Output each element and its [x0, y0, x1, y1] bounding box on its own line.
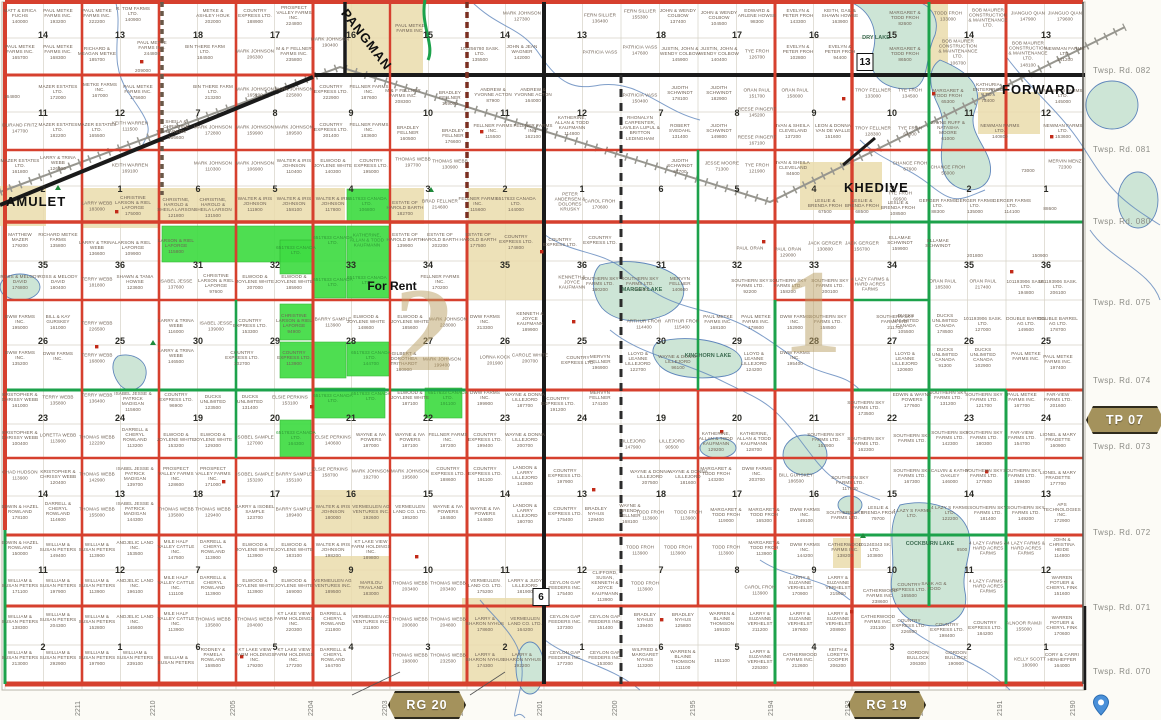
- township-road-label: Twsp. Rd. 080: [1093, 217, 1151, 226]
- parcel-label: CHRISTINE LARSON & RIEL LAFORGE94900: [274, 313, 314, 335]
- parcel-label: 6517633 CANADA LTD.144000: [496, 196, 536, 212]
- section-number: 26: [964, 336, 974, 346]
- parcel-label: EDWIN & HAZEL ROWLAND150000: [0, 540, 40, 556]
- parcel-label: ISOBEL SAMPLE127000: [235, 434, 275, 445]
- parcel-label: EVELYN & PETER FROH102800: [778, 44, 818, 60]
- section-number: 1: [579, 184, 584, 194]
- parcel-label: CORY & CARRI HENHEFFER164000: [1042, 652, 1082, 668]
- section-number: 17: [270, 30, 280, 40]
- parcel-label: DUCKS UNLIMITED123500: [193, 394, 233, 410]
- parcel-label: DWW FARMS INC.144200: [785, 542, 825, 558]
- lake-label: KINGHORN LAKE: [682, 353, 734, 359]
- parcel-label: THOMAS WEBB204000: [235, 616, 275, 627]
- parcel-label: TYE FROH134500: [890, 87, 930, 98]
- parcel-label: MATTHEW MAZER179200: [0, 232, 40, 248]
- parcel-label: 6517633 CANADA LTD.: [313, 393, 353, 403]
- parcel-label: TYE FROH64300: [890, 125, 930, 136]
- town-label-amulet: AMULET: [6, 194, 66, 209]
- parcel-label: ELWOOD & JOYLENE WHITE129300: [193, 432, 233, 448]
- parcel-label: BRADLEY FELLNER176600: [433, 128, 473, 144]
- parcel-label: BRAD FELLNER214600: [420, 198, 460, 209]
- parcel-label: REESE PINGERT145200: [737, 106, 777, 117]
- parcel-label: COUNTRY EXPRESS LTD.197900: [545, 468, 585, 484]
- parcel-label: CHRISTINE, HAROLD & SHEILA LARSON121800: [156, 197, 196, 219]
- section-number: 23: [38, 413, 48, 423]
- section-number: 9: [811, 565, 816, 575]
- section-number: 8: [734, 565, 739, 575]
- parcel-label: FELLNER FARMS INC.183600: [349, 122, 389, 138]
- parcel-label: ORAN PAUL185300: [923, 278, 963, 289]
- parcel-label: MARK JOHNSON206300: [235, 48, 275, 59]
- parcel-label: TODD FROH113900: [620, 544, 660, 555]
- parcel-label: LARRY & SHARON NYHUS178600: [465, 616, 505, 632]
- grid-coordinate-label: 2210: [150, 700, 157, 716]
- parcel-label: DWW FARMS INC.135200: [0, 350, 40, 366]
- parcel-label: LARRY & SUZANNE VERHELST211200: [740, 611, 780, 633]
- parcel-label: BIN THERE FARM LTD.213200: [193, 84, 233, 100]
- parcel-label: FERN SILLIER155300: [620, 8, 660, 19]
- parcel-label: IVAN & SHEILA CLEVELAND137200: [773, 123, 813, 139]
- parcel-label: KT LAKE VIEW FARM HOLDINGS INC.179200: [235, 647, 275, 669]
- section-number: 14: [38, 489, 48, 499]
- parcel-label: ISABEL JESSE137600: [156, 278, 196, 289]
- section-number: 34: [887, 260, 897, 270]
- parcel-label: BARRY & ISOBEL SAMPLE123700: [235, 504, 275, 520]
- section-number: 5: [734, 184, 739, 194]
- parcel-label: DARRELL & CHERYL ROWLAND211800: [313, 611, 353, 633]
- parcel-label: JUDITH SCHWINDT149800: [699, 123, 739, 139]
- parcel-label: WILLIAM & SUSAN PETERS113900: [77, 542, 117, 558]
- parcel-label: PAUL METKE FARMS INC.167700: [1002, 392, 1042, 408]
- parcel-label: LARRY & TRINA WEBB126000: [38, 155, 78, 171]
- map-labels-layer: 21MATT & ERICA FUCHS140000PAUL METKE FAR…: [0, 0, 1161, 720]
- section-number: 12: [1041, 565, 1051, 575]
- section-number: 35: [500, 260, 510, 270]
- parcel-label: TODD FROH133000: [928, 10, 968, 21]
- parcel-label: KATHERINE, ALLAN & TODD KAUFMANN: [347, 232, 387, 247]
- parcel-label: TODD FROH113900: [625, 580, 665, 591]
- parcel-label: SASK AG & FOOD: [914, 581, 954, 591]
- parcel-label: 4 LAZY FARMS & HARD ACRES FARMS: [1006, 540, 1046, 555]
- parcel-label: JOHN & WENDY COLBOW104500: [699, 10, 739, 26]
- parcel-label: PROSPECT VALLEY FARMS INC.128600: [156, 466, 196, 488]
- section-number: 14: [964, 30, 974, 40]
- parcel-label: COUNTRY EXPRESS LTD.199400: [465, 432, 505, 448]
- parcel-label: RICHARD METKE FARMS135800: [38, 232, 78, 248]
- parcel-label: WILLIAM & SUSAN PETERS113900: [77, 578, 117, 594]
- section-number: 18: [193, 489, 203, 499]
- parcel-label: DWW FARMS INC.195000: [0, 314, 40, 330]
- parcel-label: PAUL METKE FARMS INC.168100: [698, 314, 738, 330]
- lake-label: COCKBURN LAKE: [904, 541, 956, 547]
- parcel-label: TERRY WEBB136400: [77, 392, 117, 403]
- section-number: 24: [115, 413, 125, 423]
- parcel-label: METKE FARMS INC.167000: [80, 82, 120, 98]
- parcel-label: LARRY & SUZANNE VERHELST170900: [780, 575, 820, 597]
- section-number: 19: [193, 413, 203, 423]
- parcel-label: SOUTHERN SKY FARMS LTD.: [892, 433, 932, 443]
- section-number: 11: [38, 565, 48, 575]
- parcel-label: MILE HALF VALLEY CATTLE INC.111100: [156, 575, 196, 597]
- parcel-label: METKE & ASHLEY HOUK202000: [193, 8, 233, 24]
- parcel-label: MERVYN FELLNER174100: [580, 390, 620, 406]
- section-number: 11: [500, 108, 510, 118]
- grid-coordinate-label: 2191: [997, 700, 1004, 716]
- parcel-label: LEON & DONNA VAN DE WALLE151600: [813, 123, 853, 139]
- parcel-label: KATHERINE, ALLAN & TODD KAUFMANN114800: [552, 115, 592, 137]
- township-road-label: Twsp. Rd. 071: [1093, 603, 1151, 612]
- parcel-label: THOMAS WEBB155000: [77, 506, 117, 517]
- parcel-label: COUNTRY EXPRESS LTD.153300: [230, 318, 270, 334]
- parcel-label: COUNTRY EXPRESS LTD.184200: [965, 620, 1005, 636]
- parcel-label: WALTER & IRIS JOHNSON198200: [313, 542, 353, 558]
- parcel-label: CEYLON GAP FEEDERS INC.137300: [545, 614, 585, 630]
- section-number: 2: [502, 642, 507, 652]
- parcel-label: FELLNER FARMS INC.115500: [473, 123, 513, 139]
- section-number: 35: [964, 260, 974, 270]
- parcel-label: JIANGUO QIAN179600: [1045, 10, 1085, 21]
- section-number: 32: [732, 260, 742, 270]
- parcel-label: LORETTA WEBB113900: [38, 432, 78, 443]
- grid-coordinate-label: 2190: [1070, 700, 1077, 716]
- section-number: 26: [500, 336, 510, 346]
- section-number: 14: [964, 489, 974, 499]
- section-number: 12: [577, 108, 587, 118]
- parcel-label: MAZER ESTATES LTD.172000: [38, 84, 78, 100]
- section-number: 4: [348, 184, 353, 194]
- parcel-label: COUNTRY EXPRESS LTD.191100: [465, 466, 505, 482]
- parcel-label: COUNTRY EXPRESS LTD.201400: [311, 122, 351, 138]
- grid-coordinate-label: 2211: [75, 701, 82, 716]
- parcel-label: JOHN & WENDY COLBOW137400: [658, 8, 698, 24]
- parcel-label: THOMAS WEBB130900: [430, 158, 470, 169]
- parcel-label: RICHARD & MEAGAN METKE185700: [77, 46, 117, 62]
- parcel-label: LARRY & SHARON NYHUS192200: [502, 652, 542, 668]
- section-number: 2: [40, 642, 45, 652]
- parcel-label: LESLIE & BRENDA FROH67500: [805, 198, 845, 214]
- parcel-label: WAYNE & IVA POWERS144600: [465, 506, 505, 522]
- grid-coordinate-label: 2200: [612, 700, 619, 716]
- section-number: 15: [423, 30, 433, 40]
- parcel-label: KRISTOPHER & CHRISSY WEBB120400: [38, 469, 78, 485]
- parcel-label: WAYNE & IVA POWERS184500: [428, 504, 468, 520]
- parcel-label: LARRY & SUZANNE VERHELST215600: [818, 575, 858, 597]
- section-number: 2: [966, 184, 971, 194]
- parcel-label: THOMAS WEBB142900: [77, 471, 117, 482]
- grid-coordinate-label: 2205: [230, 700, 237, 716]
- parcel-label: BRADLEY NYHUS139400: [625, 612, 665, 628]
- parcel-label: WILLIAM & SUSAN PETERS292900: [38, 650, 78, 666]
- parcel-label: KT LAKE VIEW FARM HOLDINGS INC.177200: [274, 647, 314, 669]
- parcel-label: LLOYD & LEANNE LILLEJORD122700: [618, 351, 658, 373]
- parcel-label: VERMEULEN LAND CO. LTD.195200: [390, 504, 430, 520]
- section-number: 36: [115, 260, 125, 270]
- section-number: 10: [423, 108, 433, 118]
- parcel-label: WAYNE & DONNA LILLEJORD207500: [630, 469, 670, 485]
- for-rent-label: For Rent: [367, 279, 416, 293]
- section-number: 23: [964, 413, 974, 423]
- section-number: 31: [193, 260, 203, 270]
- parcel-label: MILE HALF VALLEY CATTLE INC.113900: [156, 611, 196, 633]
- parcel-label: LILLEJORD147900: [613, 438, 653, 449]
- section-number: 33: [346, 260, 356, 270]
- parcel-label: PAUL METKE FARMS INC.197400: [1038, 354, 1078, 370]
- section-number: 25: [577, 336, 587, 346]
- parcel-label: SOUTHERN SKY FARMS LTD.131200: [928, 390, 968, 406]
- parcel-label: NEWMAN FARMS LTD.153600: [1043, 123, 1083, 139]
- parcel-label: FELLNER FARMS INC.162100: [513, 123, 553, 139]
- parcel-label: ELSIE PERKINS153100: [270, 394, 310, 405]
- parcel-label: KT LAKE VIEW FARM HOLDINGS INC.189800: [351, 539, 391, 561]
- section-number: 25: [1041, 336, 1051, 346]
- parcel-label: MARGARET & TODD FROH143200: [696, 466, 736, 482]
- section-number: 3: [889, 642, 894, 652]
- parcel-label: BILL & KAY GURSKEY161000: [38, 314, 78, 330]
- parcel-label: MAZER ESTATES LTD.161800: [0, 158, 40, 174]
- parcel-label: REESE PINGERT167100: [737, 134, 777, 145]
- section-number: 30: [656, 336, 666, 346]
- section-number: 8: [272, 565, 277, 575]
- parcel-label: THOMAS WEBB200600: [390, 616, 430, 627]
- section-number: 14: [500, 30, 510, 40]
- parcel-label: WAYNE & DONNA LILLEJORD200700: [505, 432, 545, 448]
- parcel-label: DARRELL & CHERYL ROWLAND113900: [193, 539, 233, 561]
- parcel-label: ELWOOD & JOYLENE WHITE169000: [274, 578, 314, 594]
- parcel-label: DWW FARMS INC.199900: [465, 390, 505, 406]
- grid-coordinate-label: 2195: [690, 700, 697, 716]
- grid-coordinate-label: 2201: [537, 700, 544, 716]
- parcel-label: ESTATE OF HAROLD BARTH202200: [420, 232, 460, 248]
- parcel-label: BRADLEY FELLNER149000: [430, 90, 470, 106]
- parcel-label: COUNTRY EXPRESS LTD.191200: [538, 396, 578, 412]
- section-number: 12: [115, 565, 125, 575]
- section-number: 24: [1041, 413, 1051, 423]
- parcel-label: PAUL METKE FARMS INC.165700: [0, 44, 40, 60]
- parcel-label: KRISTOPHER & CHRISSY WEBB100400: [0, 430, 40, 446]
- parcel-label: TYE FROH126700: [737, 48, 777, 59]
- parcel-label: ANDJELIC LAND INC.145600: [115, 614, 155, 630]
- parcel-label: LIONEL & MARY FRADETTE160900: [1038, 432, 1078, 448]
- parcel-label: PAUL METKE FARMS INC.222200: [77, 8, 117, 24]
- parcel-label: THOMAS WEBB135800: [156, 506, 196, 517]
- section-number: 13: [1041, 489, 1051, 499]
- section-number: 7: [658, 565, 663, 575]
- highway-6-shield: 6: [533, 588, 550, 606]
- parcel-label: LARSON & RIEL LAFORGE115800: [156, 238, 196, 254]
- section-number: 20: [270, 413, 280, 423]
- parcel-label: MARK JOHNSON110300: [193, 160, 233, 171]
- parcel-label: THOMAS WEBB203400: [390, 580, 430, 591]
- section-number: 10: [887, 108, 897, 118]
- parcel-label: CAROL FROH113900: [740, 584, 780, 595]
- section-number: 36: [577, 260, 587, 270]
- parcel-label: LARRY & TRINA WEBB116000: [156, 318, 196, 334]
- parcel-label: KENNETH & JOYCE KAUFMANN189900: [510, 311, 550, 333]
- parcel-label: WALTER & IRIS JOHNSON158100: [274, 196, 314, 212]
- section-number: 16: [809, 30, 819, 40]
- parcel-label: BARRY SAMPLE155100: [274, 471, 314, 482]
- parcel-label: ELLAMAE SCHWINDT: [918, 238, 958, 248]
- parcel-label: DUCKS UNLIMITED CANADA102900: [963, 347, 1003, 369]
- section-number: 36: [1041, 260, 1051, 270]
- parcel-label: LARRY & SUZANNE VERHELST197600: [780, 611, 820, 633]
- section-number: 5: [734, 642, 739, 652]
- parcel-label: MILE HALF VALLEY CATTLE INC.147500: [156, 539, 196, 561]
- section-number: 6: [658, 184, 663, 194]
- section-number: 5: [272, 642, 277, 652]
- parcel-label: MARGARET & TODD FROH113900: [744, 540, 784, 556]
- parcel-label: KEITH WARREN111500: [110, 120, 150, 131]
- parcel-label: ELWOOD & JOYLENE WHITE113900: [235, 542, 275, 558]
- section-number: 29: [732, 336, 742, 346]
- parcel-label: PAUL METKE FARMS INC.244800: [132, 40, 172, 56]
- parcel-label: TODD FROH113900: [668, 509, 708, 520]
- parcel-label: ESTATE OF HAROLD BARTH177500: [458, 232, 498, 248]
- section-number: 4: [811, 642, 816, 652]
- parcel-label: CAROL FROH170600: [580, 198, 620, 209]
- parcel-label: CEYLON GAP FEEDERS INC.151400: [585, 614, 625, 630]
- parcel-label: TYE FROH121900: [737, 162, 777, 173]
- section-number: 13: [1041, 30, 1051, 40]
- parcel-label: 151100: [702, 657, 742, 663]
- section-number: 7: [658, 108, 663, 118]
- parcel-label: MARK JOHNSON189500: [274, 124, 314, 135]
- parcel-label: COUNTRY EXPRESS LTD.195000: [351, 158, 391, 174]
- parcel-label: GORDON BULLOCK206300: [898, 650, 938, 666]
- parcel-label: DARRELL & CHERYL ROWLAND113200: [115, 427, 155, 449]
- ghost-township-number: 1: [782, 243, 842, 381]
- section-number: 11: [500, 565, 510, 575]
- parcel-label: DOUBLE BARREL AG LTD.178700: [1038, 316, 1078, 332]
- parcel-label: 4 LAZY FARMS & HARD ACRES FARMS: [850, 276, 890, 291]
- parcel-label: CHRISTINE LARSON & RIEL LAFORGE97600: [196, 273, 236, 295]
- parcel-label: ISOBEL SAMPLE153200: [235, 471, 275, 482]
- parcel-label: WILLIAM & SUSAN PETERS171100: [0, 578, 40, 594]
- section-number: 31: [656, 260, 666, 270]
- parcel-label: NEWMAN FARMS LTD.140800: [980, 123, 1020, 139]
- parcel-label: LARRY & TRINA WEBB146500: [156, 348, 196, 364]
- parcel-label: SOUTHERN SKY FARMS LTD.153900: [806, 432, 846, 448]
- parcel-label: PAUL METKE FARMS INC.168300: [38, 44, 78, 60]
- map-canvas[interactable]: 21MATT & ERICA FUCHS140000PAUL METKE FAR…: [0, 0, 1161, 720]
- parcel-label: ANDREW & YVONNE ACTON87900: [473, 87, 513, 103]
- section-number: 21: [346, 413, 356, 423]
- parcel-label: ANDJELIC LAND INC.153500: [115, 540, 155, 556]
- parcel-label: SOUTHERN SKY FARMS LTD.177600: [964, 468, 1004, 484]
- section-number: 1: [579, 642, 584, 652]
- parcel-label: TODD FROH113900: [658, 544, 698, 555]
- parcel-label: WAYNE & IVA POWERS187100: [390, 432, 430, 448]
- parcel-label: GERGER FARMS LTD.88300: [918, 198, 958, 214]
- section-number: 6: [195, 642, 200, 652]
- parcel-label: ZAYNE RUFF & NATASHA MOORE61000: [928, 120, 968, 142]
- parcel-label: ORAN PAUL158000: [775, 87, 815, 98]
- section-number: 19: [656, 413, 666, 423]
- parcel-label: CHAD HUDSON113900: [0, 469, 40, 480]
- section-number: 1: [1043, 642, 1048, 652]
- parcel-label: DWW FARMS INC.213300: [465, 314, 505, 330]
- section-number: 20: [732, 413, 742, 423]
- section-number: 9: [348, 108, 353, 118]
- parcel-label: VERMEULEN AG VENTURES INC.192600: [351, 504, 391, 520]
- parcel-label: MARGARET & TODD FROH65300: [928, 88, 968, 104]
- parcel-label: COUNTRY EXPRESS LTD.188600: [428, 466, 468, 482]
- parcel-label: WILLIAM & SUSAN PETERS239100: [115, 650, 155, 666]
- section-number: 15: [423, 489, 433, 499]
- section-number: 10: [887, 565, 897, 575]
- parcel-label: ISABEL JESSE & PATRICK MADIGAN144300: [115, 501, 155, 523]
- grid-coordinate-label: 2204: [308, 700, 315, 716]
- parcel-label: CAROLE WHITE200700: [510, 352, 550, 363]
- parcel-label: PAUL METKE FARMS INC.175600: [118, 84, 158, 100]
- section-number: 17: [732, 489, 742, 499]
- parcel-label: MATT & ERICA FUCHS140000: [0, 8, 40, 24]
- parcel-label: CEYLON GAP FEEDERS INC.175400: [545, 580, 585, 596]
- parcel-label: VERMEULEN AG VENTURES INC.211800: [351, 614, 391, 630]
- parcel-label: ELLAMAE SCHWINDT159900: [880, 235, 920, 251]
- section-number: 4: [348, 642, 353, 652]
- parcel-label: KATHERINE, ALLAN & TODD KAUFMANN129200: [696, 431, 736, 453]
- parcel-label: KATHERINE, ALLAN & TODD KAUFMANN128700: [734, 431, 774, 453]
- parcel-label: ELSIE PERKINS140600: [313, 434, 353, 445]
- parcel-label: BRADLEY NYHUS125800: [663, 612, 703, 628]
- parcel-label: WARREN & BLAINE THOMSON111100: [663, 649, 703, 671]
- parcel-label: ESTATE OF HAROLD BARTH182700: [385, 200, 425, 216]
- parcel-label: RHONALYN CARPENTER, LAVILEA LUPUL & BRIT…: [620, 115, 660, 141]
- parcel-label: ELWOOD & JOYLENE WHITE113900: [235, 578, 275, 594]
- section-number: 13: [115, 489, 125, 499]
- parcel-label: PATRICIA VASS: [580, 49, 620, 54]
- parcel-label: BIN THERE FARM LTD.184500: [185, 44, 225, 60]
- section-number: 11: [38, 108, 48, 118]
- parcel-label: TERRY WEBB135800: [38, 394, 78, 405]
- parcel-label: THOMAS WEBB203400: [428, 580, 468, 591]
- parcel-label: 101193906 SASK. LTD.127000: [963, 316, 1003, 332]
- parcel-label: TROY FELLNER133000: [853, 87, 893, 98]
- parcel-label: CHRISTINE LARSON & RIEL LAFORGE175000: [113, 195, 153, 217]
- parcel-label: FERN SILLIER136400: [580, 12, 620, 23]
- parcel-label: ELWOOD & JOYLENE WHITE207000: [235, 274, 275, 290]
- parcel-label: DARRELL & CHERYL ROWLAND114600: [38, 501, 78, 523]
- parcel-label: JUDITH SCHWINDT67700: [660, 158, 700, 174]
- parcel-label: CLIFFORD, SUSAN, KENNETH & JOYCE KAUFMAN…: [585, 570, 625, 602]
- parcel-label: WILLIAM & SUSAN PETERS204300: [38, 612, 78, 628]
- parcel-label: WALTER & IRIS JOHNSON110400: [274, 158, 314, 174]
- parcel-label: LLOYD & LEANNE LILLEJORD120600: [885, 351, 925, 373]
- section-number: 3: [425, 642, 430, 652]
- parcel-label: EDWIN & WAYNE POWERS177600: [892, 392, 932, 408]
- section-number: 9: [811, 108, 816, 118]
- parcel-label: SOUTHERN SKY FARMS LTD.167300: [892, 468, 932, 484]
- section-number: 27: [887, 336, 897, 346]
- parcel-label: MERVYN FELLNER196900: [580, 354, 620, 370]
- parcel-label: MARILOU TRAVLAND183000: [351, 580, 391, 596]
- parcel-label: THOMAS WEBB122200: [77, 434, 117, 445]
- parcel-label: COUNTRY EXPRESS LTD.174800: [496, 234, 536, 250]
- parcel-label: NEWMAN FARMS LTD.141200: [1045, 46, 1085, 62]
- highway-13-shield: 13: [857, 53, 874, 71]
- parcel-label: ISABEL JESSE & PATRICK MADIGAN139700: [115, 466, 155, 488]
- parcel-label: TODD FROH113900: [630, 509, 670, 520]
- parcel-label: WAYNE & IVA POWERS187000: [351, 432, 391, 448]
- parcel-label: ROSS & MELODY DAVID176800: [0, 274, 40, 290]
- parcel-label: ELSIE PERKINS158700: [310, 466, 350, 477]
- section-number: 18: [193, 30, 203, 40]
- parcel-label: LANDON & LARRY LILLEJORD180700: [505, 503, 545, 525]
- parcel-label: APS TECHNOLOGIES INC.172900: [1042, 502, 1082, 524]
- map-pin[interactable]: [1092, 694, 1110, 720]
- section-number: 10: [423, 565, 433, 575]
